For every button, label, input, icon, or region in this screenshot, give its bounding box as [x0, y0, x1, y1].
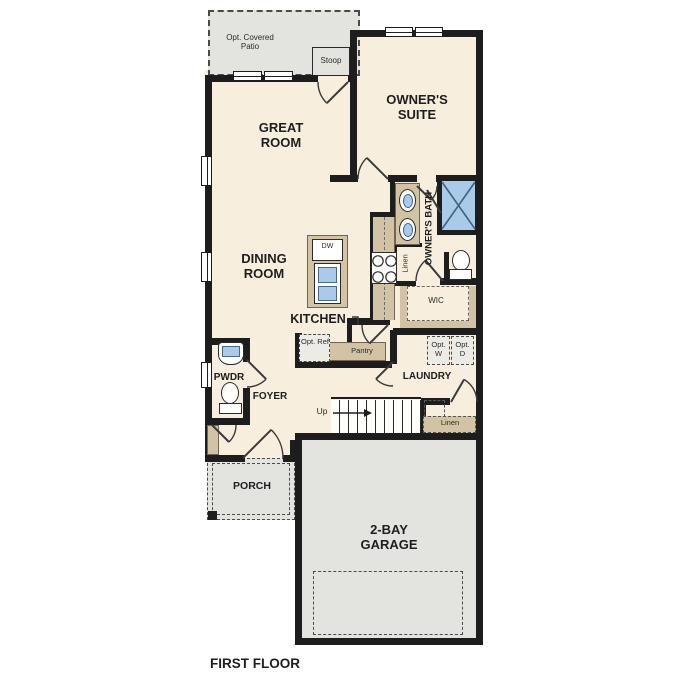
linen-stairs-label: Linen — [430, 419, 470, 428]
porch-column — [208, 511, 217, 520]
pantry-label: Pantry — [340, 347, 384, 356]
powder-sink-bowl — [222, 346, 240, 357]
linen-shelves-dashes — [424, 400, 445, 417]
kitchen-sink-bowl — [318, 286, 337, 301]
floor-plan: Opt. Covered Patio Stoop OWNER'S SUITE G… — [0, 0, 687, 687]
toilet-bowl — [452, 250, 470, 271]
opt-ref-label: Opt. Ref — [300, 338, 330, 347]
wic-label: WIC — [420, 296, 452, 305]
dishwasher-label: DW — [313, 243, 342, 251]
window — [233, 71, 262, 81]
stairs-up-label: Up — [313, 406, 331, 416]
wall-segment — [205, 455, 245, 462]
shower — [440, 179, 477, 232]
linen-bath-label: Linen — [402, 247, 411, 279]
wall-segment — [205, 418, 250, 425]
wall-segment — [243, 338, 250, 362]
porch-label: PORCH — [226, 480, 278, 492]
wall-segment — [295, 638, 483, 645]
owners-suite-label: OWNER'S SUITE — [377, 92, 457, 123]
vanity-sink-bowl — [403, 194, 413, 208]
stoop-label: Stoop — [312, 56, 350, 65]
wall-segment — [290, 440, 297, 462]
window — [415, 27, 443, 37]
toilet-tank — [219, 403, 242, 414]
kitchen-sink-bowl — [318, 267, 337, 283]
garage-door-outline — [313, 571, 463, 635]
vanity-sink-bowl — [403, 223, 413, 237]
window — [201, 252, 212, 282]
first-floor-title: FIRST FLOOR — [205, 656, 305, 672]
stairs-edge-line — [331, 397, 421, 399]
patio-label: Opt. Covered Patio — [218, 33, 282, 52]
opt-dryer-label: Opt. D — [452, 341, 473, 359]
garage-label: 2-BAY GARAGE — [349, 522, 429, 553]
wall-segment — [330, 175, 358, 182]
great-room-label: GREAT ROOM — [246, 120, 316, 151]
wall-segment — [476, 440, 483, 645]
window — [201, 156, 212, 186]
wall-segment — [350, 37, 357, 182]
owners-bath-label: OWNER'S BATH — [423, 187, 434, 271]
wall-segment — [393, 328, 483, 335]
wall-segment — [476, 30, 483, 440]
toilet-bowl — [221, 382, 239, 404]
window — [264, 71, 293, 81]
wall-segment — [295, 361, 392, 368]
kitchen-label: KITCHEN — [286, 312, 350, 327]
stairs — [331, 400, 421, 433]
foyer-label: FOYER — [248, 391, 292, 403]
opt-washer-label: Opt. W — [428, 341, 449, 359]
dining-room-label: DINING ROOM — [229, 251, 299, 282]
cooktop — [371, 252, 397, 284]
closet-wall — [207, 425, 219, 455]
wall-segment — [295, 433, 302, 645]
pwdr-label: PWDR — [208, 372, 250, 384]
window — [385, 27, 413, 37]
wall-segment — [295, 433, 483, 440]
wall-segment — [390, 330, 397, 364]
laundry-label: LAUNDRY — [387, 371, 467, 383]
toilet-tank — [449, 269, 472, 280]
